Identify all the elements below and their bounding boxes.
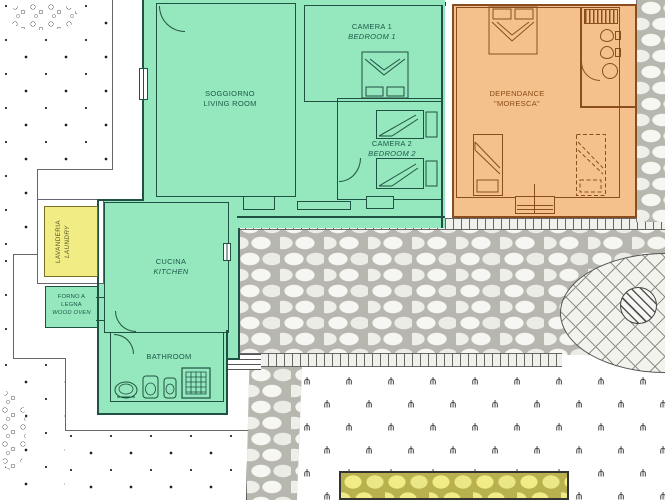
step-icon (366, 196, 394, 209)
single-bed-icon (473, 134, 503, 196)
rocks-icon (0, 388, 26, 470)
boundary-line (37, 169, 113, 170)
double-bed-icon (361, 51, 409, 99)
step-icon (243, 196, 275, 210)
camera1-label-it: CAMERA 1 (309, 22, 435, 32)
lavanderia-label-en: LAUNDRY (64, 226, 71, 259)
cucina-label-it: CUCINA (108, 257, 234, 267)
single-bed-icon (376, 158, 438, 190)
dependance-label: DEPENDANCE "MORESCA" (454, 89, 580, 109)
toilet-icon (600, 29, 614, 42)
bidet-icon (600, 46, 614, 59)
gravel-area-bottom (65, 430, 248, 500)
forno-line3: WOOD OVEN (45, 309, 98, 317)
soggiorno-label-it: SOGGIORNO (167, 89, 293, 99)
boundary-line (65, 358, 66, 430)
forno-line2: LEGNA (45, 301, 98, 309)
camera2-label: CAMERA 2 BEDROOM 2 (329, 139, 455, 159)
wall (226, 330, 228, 415)
wall (580, 106, 636, 108)
wall (96, 320, 105, 321)
stone-path-bottom (246, 367, 302, 500)
rocks-icon (10, 2, 78, 30)
bath-mat-icon (584, 9, 618, 24)
gravel-area-left-strip (0, 255, 13, 359)
lavanderia-label: LAVANDERIA LAUNDRY (54, 212, 88, 272)
wall (517, 205, 553, 206)
wall (97, 199, 144, 201)
double-bed-icon (488, 6, 538, 56)
boundary-line (13, 254, 14, 359)
camera2-label-it: CAMERA 2 (329, 139, 455, 149)
wall (238, 228, 240, 359)
stone-path-right (636, 0, 665, 222)
boundary-line (65, 430, 249, 431)
wall (534, 184, 535, 214)
soggiorno-label: SOGGIORNO LIVING ROOM (167, 89, 293, 109)
camera1-label-en: BEDROOM 1 (309, 32, 435, 42)
wall (97, 413, 228, 415)
step-icon (297, 201, 351, 210)
window-icon (139, 68, 148, 100)
terrace-bottom-kerb (236, 353, 562, 367)
yellow-pavement (339, 471, 569, 500)
cucina-label: CUCINA KITCHEN (108, 257, 234, 277)
bathroom-fixtures-icon (112, 368, 212, 402)
dependance-line1: DEPENDANCE (454, 89, 580, 99)
toilet-tank-icon (615, 31, 621, 40)
soggiorno-label-en: LIVING ROOM (167, 99, 293, 109)
bidet-tank-icon (615, 48, 621, 57)
lavanderia-label-it: LAVANDERIA (55, 221, 62, 264)
camera1-label: CAMERA 1 BEDROOM 1 (309, 22, 435, 42)
wall (237, 216, 445, 218)
bathroom-label-en: BATHROOM (106, 352, 232, 362)
boundary-line (13, 358, 66, 359)
round-table-icon (620, 287, 657, 324)
bathroom-label: BATHROOM (106, 352, 232, 362)
forno-label: FORNO A LEGNA WOOD OVEN (45, 293, 98, 317)
wall (142, 0, 144, 201)
floor-plan: ψψψψψψψψψψψψψψψψψψψψψψψψψψψψψψψψψψψψψψψψ… (0, 0, 665, 500)
forno-line1: FORNO A (45, 293, 98, 301)
single-bed-dashed-icon (576, 134, 606, 196)
dependance-line2: "MORESCA" (454, 99, 580, 109)
boundary-line (112, 0, 113, 170)
wall (580, 8, 582, 107)
camera2-label-en: BEDROOM 2 (329, 149, 455, 159)
single-bed-icon (376, 110, 438, 140)
cucina-label-en: KITCHEN (108, 267, 234, 277)
boundary-line (13, 254, 38, 255)
sink-icon (602, 63, 618, 79)
gravel-area-left-upper (0, 170, 37, 255)
wall (517, 209, 553, 210)
